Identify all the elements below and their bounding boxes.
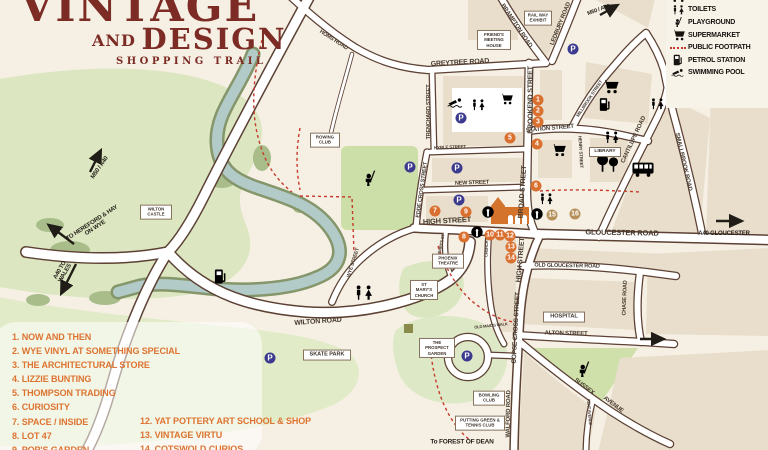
- trail-list-item: 6. CURIOSITY: [12, 400, 180, 414]
- direction-label: To FOREST OF DEAN: [430, 440, 493, 447]
- legend-item: TOILETS: [668, 4, 764, 17]
- trail-list-item: 4. LIZZIE BUNTING: [12, 372, 180, 386]
- trail-list-item: 13. VINTAGE VIRTU: [140, 428, 311, 442]
- legend-label: SUPERMARKET: [688, 32, 740, 39]
- parking-icon: P: [462, 351, 473, 362]
- shopping-trail-map: VINTAGE AND DESIGN SHOPPING TRAIL BUS ST…: [0, 0, 768, 450]
- legend-label: PUBLIC FOOTPATH: [688, 44, 750, 51]
- trail-marker-3[interactable]: 3: [533, 117, 544, 128]
- legend-item: PUBLIC FOOTPATH: [668, 41, 764, 54]
- place-box-prospect-garden: THE PROSPECT GARDEN: [419, 338, 455, 358]
- trail-list-item: 3. THE ARCHITECTURAL STORE: [12, 358, 180, 372]
- place-box-st-marys-church: ST MARY'S CHURCH: [410, 280, 438, 300]
- toilets-icon: [668, 5, 688, 15]
- trail-marker-5[interactable]: 5: [505, 133, 516, 144]
- place-box-putting-green: PUTTING GREEN & TENNIS CLUB: [455, 416, 505, 431]
- trail-marker-15[interactable]: 15: [547, 210, 558, 221]
- playground-icon: [668, 17, 688, 28]
- parking-icon: P: [454, 195, 465, 206]
- trail-list-item: 5. THOMPSON TRADING: [12, 386, 180, 400]
- street-label: OLD GLOUCESTER ROAD: [534, 264, 599, 271]
- place-box-wilton-castle: WILTON CASTLE: [140, 205, 172, 220]
- legend-label: PETROL STATION: [688, 57, 745, 64]
- trail-logo: VINTAGE AND DESIGN SHOPPING TRAIL: [20, 0, 287, 67]
- parking-icon: P: [568, 44, 579, 55]
- trail-marker-7[interactable]: 7: [430, 206, 441, 217]
- direction-label: A40 GLOUCESTER: [698, 231, 750, 237]
- trail-list-right: 12. YAT POTTERY ART SCHOOL & SHOP 13. VI…: [140, 414, 311, 450]
- street-label: KENT AVENUE: [586, 399, 592, 425]
- logo-tagline: SHOPPING TRAIL: [116, 56, 287, 67]
- logo-and: AND: [92, 31, 136, 50]
- legend-item: SWIMMING POOL: [668, 67, 764, 80]
- trail-marker-9[interactable]: 9: [461, 207, 472, 218]
- logo-design: DESIGN: [142, 22, 287, 56]
- legend-item: SUPERMARKET: [668, 29, 764, 42]
- trail-marker-2[interactable]: 2: [533, 106, 544, 117]
- street-label: NEW STREET: [455, 181, 489, 188]
- place-box-rowing-club: ROWING CLUB: [310, 133, 340, 148]
- parking-icon: P: [265, 353, 276, 364]
- garden-feature: [404, 324, 413, 333]
- legend-item: PLAYGROUND: [668, 16, 764, 29]
- street-label: WALFORD ROAD: [505, 390, 512, 437]
- legend-label: PLAYGROUND: [688, 19, 735, 26]
- trail-marker-4[interactable]: 4: [532, 139, 543, 150]
- footpath-dashes: [668, 47, 688, 49]
- petrol-icon: [668, 54, 688, 66]
- trail-list-item: 2. WYE VINYL AT SOMETHING SPECIAL: [12, 344, 180, 358]
- legend-label: SWIMMING POOL: [688, 69, 745, 76]
- trail-marker-12[interactable]: 12: [505, 231, 516, 242]
- legend-label: TOILETS: [688, 6, 716, 13]
- place-box-hospital: HOSPITAL: [543, 312, 585, 323]
- logo-subtitle: AND DESIGN: [92, 25, 287, 54]
- place-box-bowling-club: BOWLING CLUB: [473, 391, 505, 406]
- supermarket-icon: [668, 29, 688, 41]
- parking-icon: P: [452, 163, 463, 174]
- landmark-icon: [482, 206, 493, 217]
- trail-marker-1[interactable]: 1: [533, 95, 544, 106]
- trail-list-item: 12. YAT POTTERY ART SCHOOL & SHOP: [140, 414, 311, 428]
- place-box-railway-exhibit: RAIL WAY EXHIBIT: [524, 11, 552, 26]
- street-label: ALTON STREET: [544, 330, 587, 337]
- place-box-library: LIBRARY: [589, 147, 621, 157]
- bus-icon: [668, 0, 688, 2]
- street-label: CHASE ROAD: [623, 280, 630, 315]
- trail-marker-13[interactable]: 13: [506, 242, 517, 253]
- trail-marker-14[interactable]: 14: [506, 253, 517, 264]
- trail-marker-6[interactable]: 6: [531, 181, 542, 192]
- trail-list-item: 1. NOW AND THEN: [12, 330, 180, 344]
- place-box-phoenix-theatre: PHOENIX THEATRE: [432, 254, 464, 269]
- swimming-icon: [668, 68, 688, 77]
- legend-label: BUS STATION: [688, 0, 732, 1]
- landmark-icon: [531, 208, 542, 219]
- legend-item: PETROL STATION: [668, 54, 764, 67]
- street-label: HENRY STREET: [577, 136, 583, 168]
- parking-icon: P: [405, 162, 416, 173]
- trail-marker-16[interactable]: 16: [570, 209, 581, 220]
- leisure-centre-block: [452, 88, 522, 132]
- map-legend: BUS STATION TOILETS PLAYGROUND SUPERMARK…: [668, 0, 764, 79]
- trail-list-item: 14. COTSWOLD CURIOS: [140, 442, 311, 450]
- place-box-skate-park: SKATE PARK: [303, 350, 351, 361]
- landmark-icon: [471, 226, 482, 237]
- place-box-friends-meeting-house: FRIEND'S MEETING HOUSE: [477, 30, 511, 50]
- street-label: TRENCHARD STREET: [427, 85, 433, 140]
- parking-icon: P: [456, 113, 467, 124]
- trail-marker-8[interactable]: 8: [459, 232, 470, 243]
- street-label: GLOUCESTER ROAD: [585, 228, 658, 237]
